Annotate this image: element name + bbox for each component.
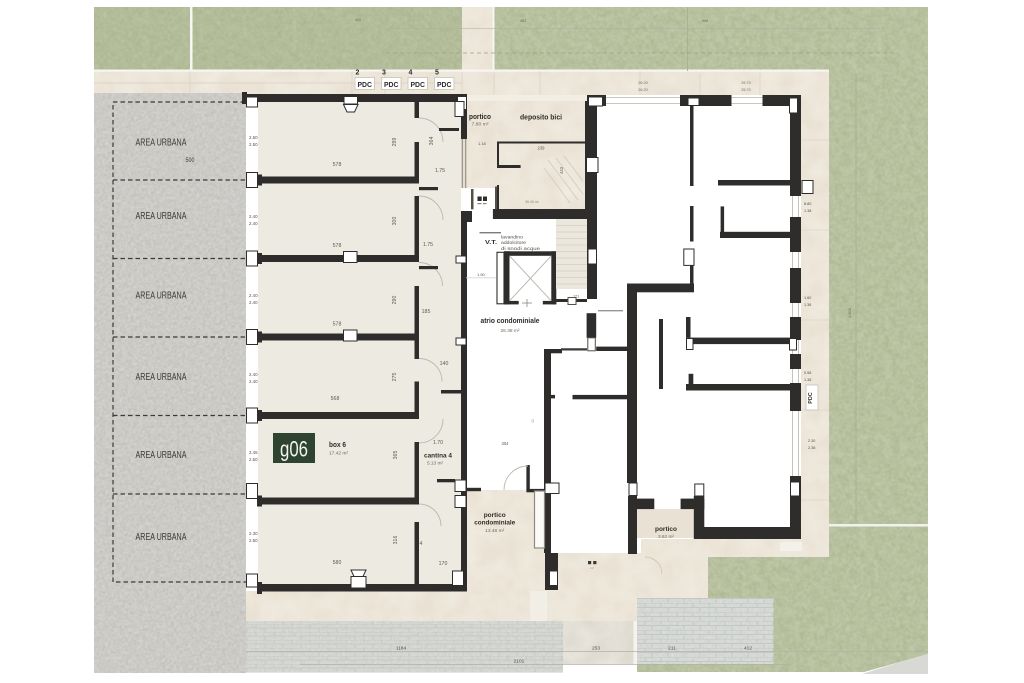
svg-text:2: 2: [356, 70, 360, 77]
svg-text:5: 5: [435, 70, 439, 77]
svg-text:AREA URBANA: AREA URBANA: [136, 138, 187, 149]
svg-text:211: 211: [668, 646, 676, 652]
svg-text:2.40: 2.40: [249, 293, 258, 298]
svg-text:26.38 m²: 26.38 m²: [501, 328, 520, 334]
svg-text:25.70: 25.70: [741, 81, 751, 85]
svg-text:25.70: 25.70: [741, 88, 751, 92]
svg-text:5.13 m²: 5.13 m²: [427, 461, 443, 466]
svg-text:di snodi acque: di snodi acque: [501, 246, 540, 252]
svg-text:1.75: 1.75: [423, 242, 433, 248]
svg-text:1184: 1184: [396, 646, 407, 652]
svg-text:addolcitore: addolcitore: [501, 240, 526, 246]
svg-text:2.40: 2.40: [249, 379, 258, 384]
svg-text:0.58: 0.58: [804, 371, 811, 375]
svg-text:1.75: 1.75: [435, 168, 445, 174]
svg-text:2.45: 2.45: [249, 450, 258, 455]
svg-text:400: 400: [355, 18, 361, 22]
svg-text:17.42 m²: 17.42 m²: [329, 451, 348, 457]
svg-text:1.60: 1.60: [804, 296, 811, 300]
svg-text:2.30: 2.30: [249, 531, 258, 536]
svg-text:2101: 2101: [514, 659, 525, 665]
svg-text:36.40 m²: 36.40 m²: [525, 200, 539, 204]
svg-text:PDC: PDC: [437, 80, 452, 89]
svg-text:4: 4: [420, 541, 423, 547]
svg-text:3: 3: [382, 70, 386, 77]
svg-text:2.40: 2.40: [249, 221, 258, 226]
svg-text:cantina 4: cantina 4: [424, 453, 452, 460]
svg-text:364: 364: [429, 137, 435, 146]
svg-text:412: 412: [744, 646, 752, 652]
svg-text:3.62 m²: 3.62 m²: [658, 534, 674, 540]
svg-text:26.20: 26.20: [638, 88, 648, 92]
svg-text:300: 300: [392, 217, 398, 226]
svg-text:2.40: 2.40: [249, 214, 258, 219]
svg-text:AREA URBANA: AREA URBANA: [136, 211, 187, 222]
svg-text:578: 578: [333, 243, 342, 249]
svg-text:185: 185: [422, 309, 431, 315]
svg-text:2.50: 2.50: [249, 135, 258, 140]
svg-text:500: 500: [186, 158, 196, 164]
svg-text:304: 304: [502, 441, 510, 446]
svg-text:299: 299: [392, 138, 398, 147]
svg-text:26.20: 26.20: [638, 81, 648, 85]
svg-text:121: 121: [573, 295, 579, 299]
svg-text:AREA URBANA: AREA URBANA: [136, 532, 187, 543]
svg-text:443: 443: [559, 166, 564, 174]
svg-text:2.40: 2.40: [249, 372, 258, 377]
svg-text:box 6: box 6: [329, 442, 346, 449]
svg-text:958: 958: [702, 19, 708, 23]
svg-text:PDC: PDC: [808, 392, 814, 403]
svg-text:condominiale: condominiale: [474, 520, 515, 527]
svg-text:290: 290: [392, 296, 398, 305]
svg-text:g06: g06: [280, 437, 308, 462]
svg-text:2.50: 2.50: [249, 142, 258, 147]
svg-text:PDC: PDC: [384, 80, 399, 89]
svg-text:1.38: 1.38: [804, 378, 811, 382]
svg-text:316: 316: [393, 536, 399, 545]
svg-text:1.38: 1.38: [804, 303, 811, 307]
svg-text:deposito bici: deposito bici: [520, 115, 562, 122]
svg-text:AREA URBANA: AREA URBANA: [136, 291, 187, 302]
svg-text:2.40: 2.40: [249, 300, 258, 305]
svg-text:PDC: PDC: [357, 80, 372, 89]
svg-text:atrio condominiale: atrio condominiale: [481, 316, 540, 325]
svg-text:1.603: 1.603: [847, 307, 852, 318]
svg-text:portico: portico: [484, 512, 506, 519]
svg-text:lavandino: lavandino: [501, 235, 523, 241]
svg-text:2.38: 2.38: [808, 446, 815, 450]
svg-text:42: 42: [531, 419, 535, 423]
svg-text:AREA URBANA: AREA URBANA: [136, 372, 187, 383]
svg-text:PDC: PDC: [410, 80, 425, 89]
svg-text:13.48 m²: 13.48 m²: [485, 528, 504, 534]
svg-text:1.50: 1.50: [477, 272, 486, 277]
svg-text:463: 463: [520, 19, 526, 23]
svg-text:2.30: 2.30: [808, 439, 815, 443]
svg-text:AREA URBANA: AREA URBANA: [136, 450, 187, 461]
svg-text:2.50: 2.50: [249, 457, 258, 462]
svg-text:275: 275: [392, 373, 398, 382]
svg-text:365: 365: [393, 451, 399, 460]
svg-text:portico: portico: [655, 526, 677, 533]
svg-text:V.T.: V.T.: [485, 240, 498, 246]
svg-text:580: 580: [333, 560, 342, 566]
svg-text:1.38: 1.38: [804, 209, 811, 213]
svg-text:1.70: 1.70: [433, 440, 443, 446]
svg-text:253: 253: [592, 646, 600, 652]
svg-text:m²: m²: [590, 566, 594, 570]
svg-text:578: 578: [333, 322, 342, 328]
svg-text:4: 4: [409, 70, 413, 77]
svg-text:170: 170: [439, 561, 448, 567]
svg-text:2.50: 2.50: [249, 538, 258, 543]
svg-text:239: 239: [538, 146, 546, 151]
svg-text:7.80 m²: 7.80 m²: [472, 122, 489, 128]
svg-text:578: 578: [333, 162, 342, 168]
svg-text:568: 568: [331, 396, 340, 402]
svg-text:140: 140: [440, 361, 449, 367]
svg-text:8.80: 8.80: [804, 202, 811, 206]
svg-text:portico: portico: [469, 114, 491, 121]
svg-text:1.18: 1.18: [478, 141, 487, 146]
